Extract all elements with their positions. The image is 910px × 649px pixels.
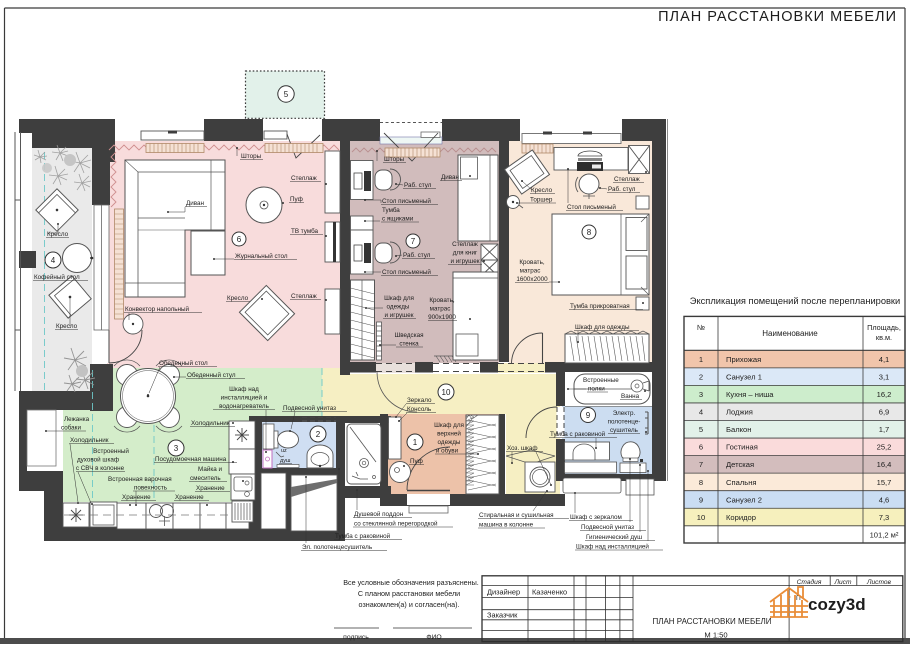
- svg-text:Эл. полотенцесушитель: Эл. полотенцесушитель: [302, 544, 373, 551]
- svg-text:верхней: верхней: [437, 430, 461, 438]
- svg-text:6: 6: [699, 443, 703, 452]
- svg-text:Кресло: Кресло: [531, 187, 553, 194]
- svg-text:1: 1: [413, 438, 418, 447]
- svg-text:ПЛАН РАССТАНОВКИ МЕБЕЛИ: ПЛАН РАССТАНОВКИ МЕБЕЛИ: [652, 617, 771, 626]
- svg-text:Журнальный стол: Журнальный стол: [235, 252, 288, 260]
- svg-text:Холодильник: Холодильник: [191, 420, 230, 427]
- svg-text:900х1900: 900х1900: [428, 314, 456, 321]
- svg-text:Подвесной унитаз: Подвесной унитаз: [283, 404, 336, 412]
- svg-text:собаки: собаки: [61, 424, 81, 432]
- svg-text:и обуви: и обуви: [436, 447, 459, 455]
- svg-text:1600х2000: 1600х2000: [516, 276, 548, 283]
- svg-text:Стол письменый: Стол письменый: [382, 197, 431, 205]
- svg-text:душ: душ: [280, 458, 291, 464]
- svg-text:Кухня – ниша: Кухня – ниша: [726, 390, 774, 399]
- svg-text:Стиральная и сушильная: Стиральная и сушильная: [479, 512, 554, 519]
- svg-text:Подвесной унитаз: Подвесной унитаз: [581, 523, 634, 531]
- svg-text:Кофейный стол: Кофейный стол: [34, 273, 80, 281]
- svg-text:Площадь,: Площадь,: [867, 323, 901, 332]
- svg-text:ТВ тумба: ТВ тумба: [291, 227, 319, 235]
- svg-text:Прихожая: Прихожая: [726, 355, 761, 364]
- svg-text:Раб. стул: Раб. стул: [404, 181, 432, 189]
- svg-text:одежды: одежды: [387, 304, 410, 311]
- svg-text:водонагреватель: водонагреватель: [219, 403, 270, 410]
- svg-text:Балкон: Балкон: [726, 425, 751, 434]
- svg-text:1,7: 1,7: [879, 425, 890, 434]
- svg-text:25,2: 25,2: [877, 443, 892, 452]
- svg-text:Хранение: Хранение: [196, 485, 225, 492]
- svg-text:Пуф: Пуф: [410, 458, 423, 465]
- svg-text:7: 7: [699, 460, 703, 469]
- svg-text:Холодильник: Холодильник: [70, 437, 109, 444]
- svg-text:Стеллаж: Стеллаж: [614, 176, 641, 183]
- svg-text:со стеклянной перегородкой: со стеклянной перегородкой: [354, 520, 438, 528]
- svg-text:Заказчик: Заказчик: [487, 611, 518, 620]
- svg-text:с ящиками: с ящиками: [382, 216, 414, 223]
- svg-text:для книг: для книг: [453, 250, 478, 257]
- svg-text:4: 4: [699, 408, 703, 417]
- svg-text:М 1:50: М 1:50: [704, 631, 727, 640]
- svg-text:Встроенные: Встроенные: [583, 377, 619, 384]
- svg-text:101,2 м²: 101,2 м²: [870, 530, 899, 539]
- svg-text:подпись: подпись: [343, 634, 369, 641]
- svg-text:Диван: Диван: [441, 174, 460, 181]
- svg-text:Диван: Диван: [186, 200, 205, 207]
- svg-text:2: 2: [316, 430, 321, 439]
- svg-text:10: 10: [697, 513, 705, 522]
- svg-text:1: 1: [699, 355, 703, 364]
- svg-text:2: 2: [699, 373, 703, 382]
- svg-text:Стол письменый: Стол письменый: [382, 268, 431, 276]
- svg-text:8: 8: [587, 228, 592, 237]
- svg-text:Детская: Детская: [726, 460, 754, 469]
- svg-text:Тумба с раковиной: Тумба с раковиной: [335, 532, 391, 540]
- svg-text:7,3: 7,3: [879, 513, 890, 522]
- svg-text:Листов: Листов: [866, 579, 892, 586]
- svg-text:стенка: стенка: [399, 341, 419, 348]
- svg-text:повехность: повехность: [134, 485, 168, 492]
- svg-text:ознакомлен(а) и согласен(на).: ознакомлен(а) и согласен(на).: [359, 600, 460, 609]
- svg-text:Лоджия: Лоджия: [726, 408, 753, 417]
- svg-text:10: 10: [442, 388, 451, 397]
- svg-text:Встроенная варочная: Встроенная варочная: [108, 476, 172, 483]
- svg-text:Наименование: Наименование: [762, 329, 818, 338]
- svg-text:Все условные обозначения разъя: Все условные обозначения разъяснены.: [343, 578, 479, 587]
- svg-text:Санузел 1: Санузел 1: [726, 373, 762, 382]
- svg-text:Гигиенический душ: Гигиенический душ: [586, 533, 642, 541]
- svg-text:cozy3d: cozy3d: [808, 595, 866, 614]
- svg-text:16,4: 16,4: [877, 460, 892, 469]
- svg-text:Зеркало: Зеркало: [407, 397, 432, 404]
- svg-text:15,7: 15,7: [877, 478, 892, 487]
- svg-text:Дизайнер: Дизайнер: [487, 588, 520, 597]
- svg-text:Пуф: Пуф: [290, 196, 303, 203]
- svg-text:Конвектор напольный: Конвектор напольный: [125, 305, 190, 313]
- svg-text:Обеденный стул: Обеденный стул: [187, 371, 236, 379]
- svg-text:кв.м.: кв.м.: [876, 333, 892, 342]
- svg-text:Тумба: Тумба: [382, 206, 400, 214]
- svg-text:Хранение: Хранение: [122, 494, 151, 501]
- svg-text:Ванна: Ванна: [621, 393, 640, 400]
- svg-text:Коридор: Коридор: [726, 513, 756, 522]
- svg-text:4: 4: [51, 256, 56, 265]
- svg-text:инсталляцией и: инсталляцией и: [221, 394, 268, 402]
- svg-text:Обеденный стол: Обеденный стол: [159, 359, 208, 367]
- svg-text:5: 5: [284, 90, 289, 99]
- svg-text:6,9: 6,9: [879, 408, 890, 417]
- svg-text:8: 8: [699, 478, 703, 487]
- svg-text:духовой шкаф: духовой шкаф: [77, 456, 119, 464]
- svg-text:Раб. стул: Раб. стул: [403, 251, 431, 259]
- svg-text:3,1: 3,1: [879, 373, 890, 382]
- svg-text:смеситель: смеситель: [190, 475, 221, 482]
- svg-text:Санузел 2: Санузел 2: [726, 495, 762, 504]
- svg-text:Стол письменый: Стол письменый: [567, 203, 616, 211]
- svg-text:Шторы: Шторы: [384, 156, 405, 163]
- svg-text:с СВЧ в колонне: с СВЧ в колонне: [76, 465, 125, 472]
- svg-text:Шкаф для: Шкаф для: [434, 422, 464, 429]
- svg-text:ПЛАН РАССТАНОВКИ МЕБЕЛИ: ПЛАН РАССТАНОВКИ МЕБЕЛИ: [658, 9, 897, 25]
- svg-text:сушитель: сушитель: [610, 427, 639, 434]
- svg-text:3: 3: [174, 444, 179, 453]
- svg-text:5: 5: [699, 425, 703, 434]
- svg-text:№: №: [697, 323, 705, 332]
- svg-text:Кресло: Кресло: [56, 323, 78, 330]
- svg-text:Стеллаж: Стеллаж: [291, 293, 318, 300]
- svg-text:полотенце-: полотенце-: [608, 419, 641, 426]
- svg-text:6: 6: [237, 235, 242, 244]
- svg-text:С планом расстановки мебели: С планом расстановки мебели: [358, 589, 460, 598]
- svg-text:3: 3: [699, 390, 703, 399]
- svg-text:Гостиная: Гостиная: [726, 443, 758, 452]
- svg-text:Стеллаж: Стеллаж: [291, 175, 318, 182]
- svg-text:Лист: Лист: [834, 579, 852, 586]
- svg-text:Посудомоечная машина: Посудомоечная машина: [155, 456, 227, 463]
- svg-text:Встроенный: Встроенный: [93, 447, 129, 455]
- svg-text:Душевой поддон: Душевой поддон: [354, 510, 404, 518]
- svg-text:одежды: одежды: [438, 439, 461, 446]
- svg-text:матрас: матрас: [430, 306, 451, 313]
- svg-text:Шкаф для: Шкаф для: [384, 295, 414, 302]
- svg-text:Консоль: Консоль: [407, 406, 432, 413]
- svg-text:Тумба прикроватная: Тумба прикроватная: [570, 302, 630, 310]
- svg-text:Майка и: Майка и: [198, 465, 222, 473]
- svg-text:ФИО: ФИО: [426, 634, 441, 641]
- svg-text:Казаченко: Казаченко: [532, 588, 567, 597]
- svg-text:и игрушек: и игрушек: [385, 312, 414, 319]
- svg-text:Торшер: Торшер: [530, 197, 553, 204]
- svg-text:Тумба с раковиной: Тумба с раковиной: [550, 430, 606, 438]
- svg-text:Шведская: Шведская: [394, 332, 423, 339]
- svg-text:и игрушек: и игрушек: [451, 258, 480, 265]
- svg-text:7: 7: [411, 237, 416, 246]
- svg-text:9: 9: [699, 495, 703, 504]
- svg-text:полки: полки: [588, 386, 605, 393]
- svg-text:4,1: 4,1: [879, 355, 890, 364]
- svg-text:машина в колонне: машина в колонне: [479, 522, 534, 529]
- svg-text:4,6: 4,6: [879, 495, 890, 504]
- svg-text:9: 9: [586, 411, 591, 420]
- svg-text:Спальня: Спальня: [726, 478, 757, 487]
- svg-text:Стеллаж: Стеллаж: [452, 241, 479, 248]
- svg-text:Шкаф с зеркалом: Шкаф с зеркалом: [570, 514, 622, 521]
- svg-text:Хоз. шкаф: Хоз. шкаф: [507, 445, 538, 452]
- svg-text:Шкаф для одежды: Шкаф для одежды: [575, 324, 630, 331]
- svg-text:Шторы: Шторы: [241, 153, 262, 160]
- svg-text:Шкаф над: Шкаф над: [229, 386, 259, 393]
- svg-text:Лежанка: Лежанка: [64, 416, 90, 423]
- svg-text:uz: uz: [281, 448, 287, 454]
- svg-text:Экспликация помещений после пе: Экспликация помещений после перепланиров…: [690, 296, 900, 306]
- svg-text:Кресло: Кресло: [227, 295, 249, 302]
- svg-text:16,2: 16,2: [877, 390, 892, 399]
- svg-text:Хранение: Хранение: [175, 494, 204, 501]
- svg-text:Раб. стул: Раб. стул: [608, 185, 636, 193]
- svg-text:Кровать,: Кровать,: [519, 259, 544, 266]
- svg-text:Кровать,: Кровать,: [429, 297, 454, 304]
- svg-text:Электр.: Электр.: [613, 410, 636, 417]
- svg-text:Стадия: Стадия: [797, 578, 822, 586]
- svg-text:Шкаф над инсталляцией: Шкаф над инсталляцией: [576, 543, 649, 551]
- svg-text:матрас: матрас: [520, 268, 541, 275]
